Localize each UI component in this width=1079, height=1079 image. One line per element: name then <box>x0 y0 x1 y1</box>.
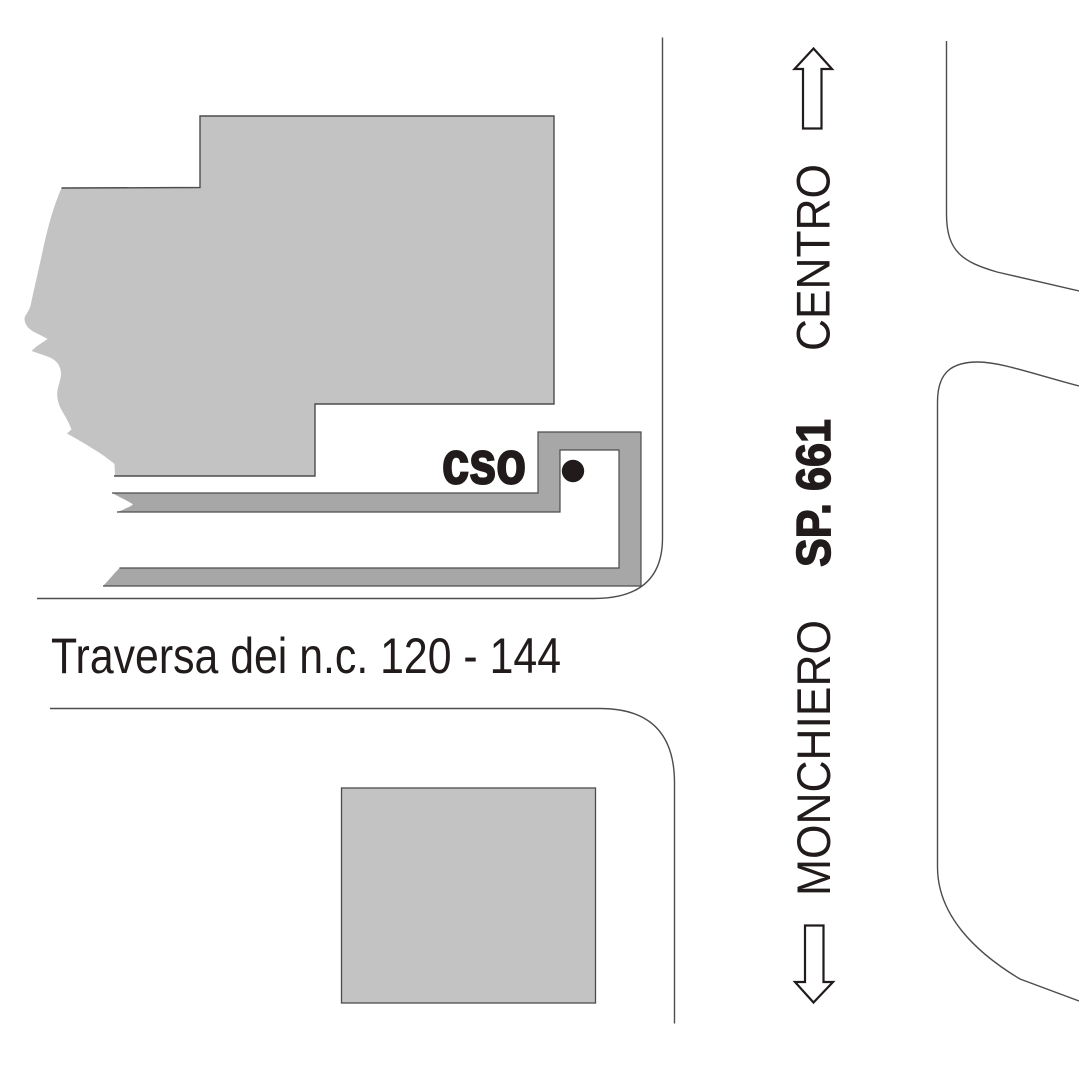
svg-text:CENTRO: CENTRO <box>787 164 840 351</box>
svg-text:Traversa dei n.c. 120 - 144: Traversa dei n.c. 120 - 144 <box>51 627 561 684</box>
svg-text:SP. 661: SP. 661 <box>788 419 841 567</box>
svg-text:MONCHIERO: MONCHIERO <box>787 620 840 896</box>
svg-text:cso: cso <box>442 430 526 497</box>
